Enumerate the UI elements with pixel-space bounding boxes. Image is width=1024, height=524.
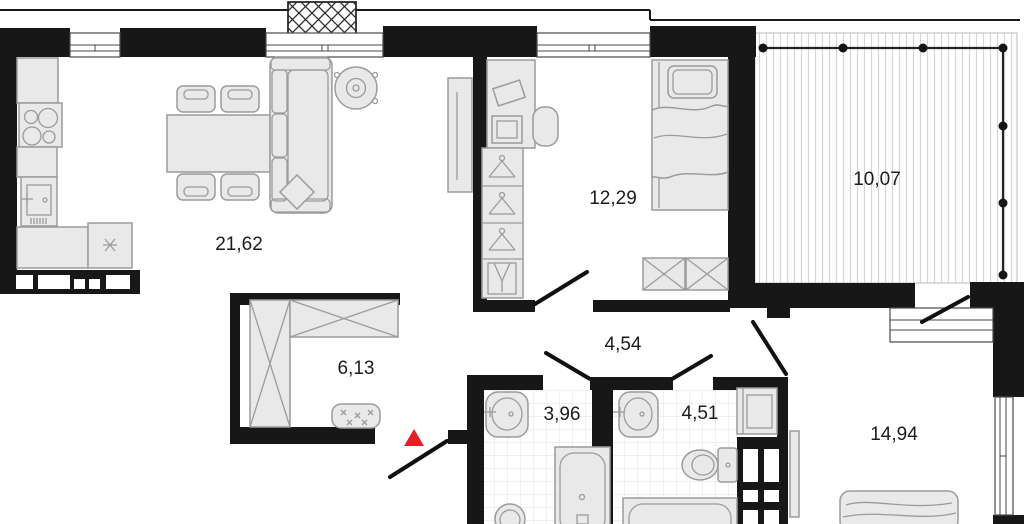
kitchen-counter-top	[17, 58, 58, 103]
washbasin-2	[613, 392, 658, 437]
stove	[19, 103, 62, 147]
chair	[221, 86, 259, 112]
balcony-floor-hatch	[755, 33, 1017, 283]
tv-panel	[790, 431, 799, 517]
chair	[177, 174, 215, 200]
room-label-bedroom: 12,29	[589, 188, 637, 209]
dining-table	[167, 115, 270, 172]
kitchen-sink	[21, 177, 57, 226]
bathroom2-door	[672, 356, 711, 379]
chair	[221, 174, 259, 200]
room-label-bathroom2: 4,51	[682, 403, 719, 424]
bed-2	[840, 491, 958, 524]
wardrobe	[482, 148, 523, 298]
washing-machine	[737, 388, 777, 434]
shoe-bench	[332, 404, 380, 428]
kitchen-window-1	[70, 33, 120, 57]
kitchen-counter-mid	[17, 147, 57, 177]
desk-chair	[533, 107, 558, 146]
kitchen-counter-bottom	[17, 227, 88, 268]
bed	[652, 60, 728, 210]
room-label-kitchen-living: 21,62	[215, 234, 263, 255]
bedroom	[482, 60, 728, 298]
dresser	[643, 258, 728, 290]
washbasin	[484, 392, 528, 437]
room-label-bedroom2: 14,94	[870, 424, 918, 445]
bathtub	[555, 447, 610, 524]
toilet-2	[682, 448, 737, 482]
bathtub-2	[623, 498, 737, 524]
room-label-balcony: 10,07	[853, 169, 901, 190]
parapet-lines	[0, 10, 1020, 20]
desk	[487, 60, 535, 148]
hall-wardrobe-horizontal	[290, 300, 398, 337]
vent-shaft	[737, 437, 788, 524]
sofa	[270, 57, 332, 213]
floor-plan: 21,62 12,29 10,07 6,13 4,54 3,96 4,51 14…	[0, 0, 1024, 524]
entrance-door	[390, 441, 447, 477]
room-label-entry-hall: 6,13	[338, 358, 375, 379]
chair	[177, 86, 215, 112]
room-label-corridor: 4,54	[605, 334, 642, 355]
tv-console	[448, 78, 472, 192]
hall-wardrobe-vertical	[250, 300, 290, 427]
kitchen-window-2	[266, 33, 383, 57]
side-table	[335, 67, 378, 109]
bedroom2-door	[753, 322, 786, 374]
blanket	[652, 105, 728, 178]
entrance-marker	[404, 429, 424, 446]
bathroom-door	[546, 353, 590, 379]
bedroom2-side-window	[995, 397, 1013, 515]
fridge	[88, 223, 132, 268]
room-label-bathroom: 3,96	[544, 404, 581, 425]
balcony	[755, 33, 1017, 283]
bedroom-door	[535, 272, 587, 304]
floor-plan-page: 21,62 12,29 10,07 6,13 4,54 3,96 4,51 14…	[0, 0, 1024, 524]
bedroom-window	[537, 33, 650, 57]
